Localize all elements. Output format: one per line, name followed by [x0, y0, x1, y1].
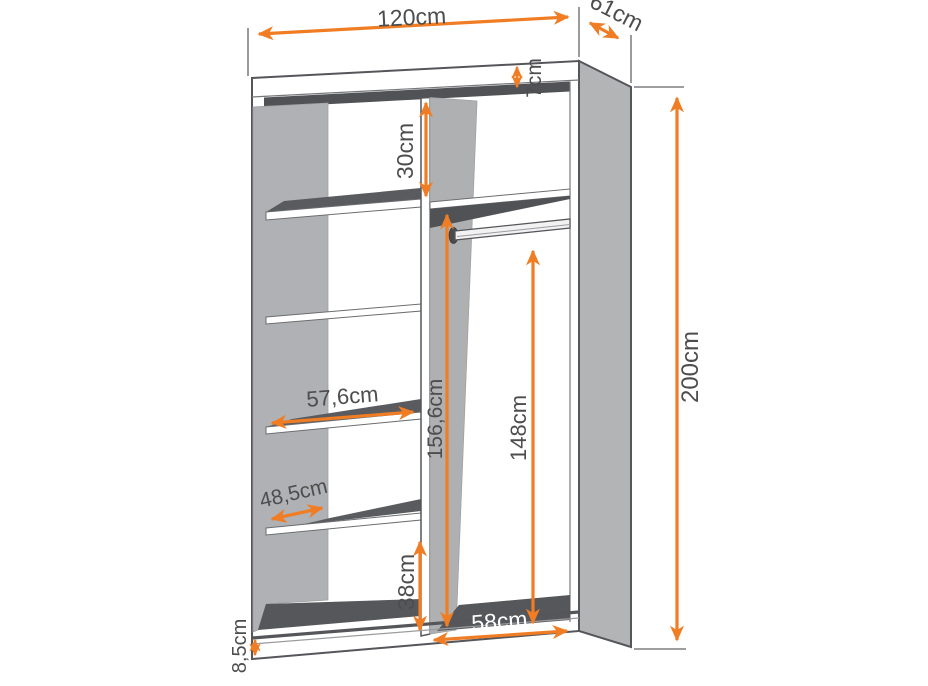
- wardrobe-structure: [252, 61, 631, 659]
- dim-width-label: 120cm: [376, 2, 446, 32]
- dim-depth-label: 61cm: [586, 0, 648, 36]
- dim-height: 200cm: [677, 98, 704, 640]
- dim-depth: 61cm: [586, 0, 648, 38]
- wardrobe-right-side-panel: [579, 61, 631, 647]
- left-side-inner-panel: [253, 103, 328, 632]
- dim-height-label: 200cm: [677, 331, 704, 403]
- dim-hanging-height-label: 148cm: [506, 395, 531, 461]
- dim-interior-height-label: 156,6cm: [424, 379, 447, 460]
- dim-bottom-gap-label: 38cm: [393, 554, 419, 610]
- dim-depth-arrow: [590, 23, 618, 38]
- dim-width: 120cm: [259, 2, 568, 34]
- dim-top-gap-label: 30cm: [392, 123, 418, 179]
- diagram-canvas: 120cm 61cm 7cm 30cm 200cm 156,6cm: [0, 0, 928, 686]
- dim-top-panel-label: 7cm: [523, 58, 546, 98]
- dim-plinth-height-label: 8,5cm: [229, 619, 251, 673]
- dim-right-section-width-label: 58cm: [470, 606, 528, 636]
- wardrobe-diagram: 120cm 61cm 7cm 30cm 200cm 156,6cm: [0, 0, 928, 686]
